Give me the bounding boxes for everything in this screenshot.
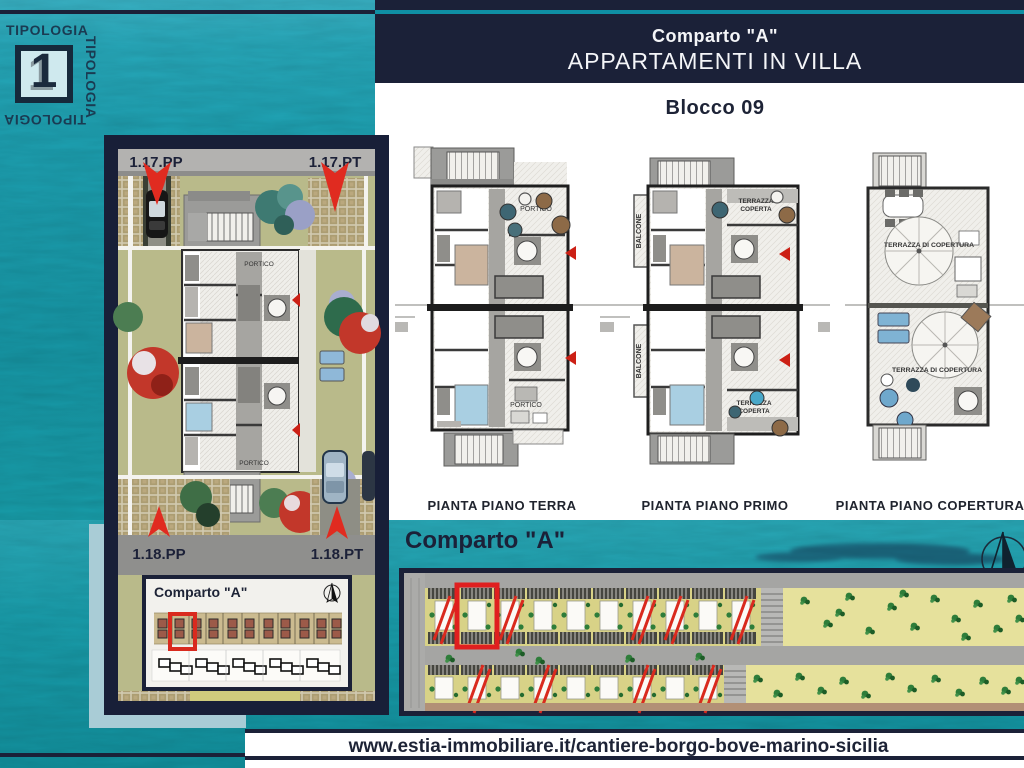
svg-text:PORTICO: PORTICO	[510, 402, 542, 409]
svg-text:TERRAZZA DI COPERTURA: TERRAZZA DI COPERTURA	[892, 367, 982, 374]
svg-text:BALCONE: BALCONE	[636, 213, 643, 248]
svg-text:PORTICO: PORTICO	[244, 261, 274, 268]
svg-text:1.17.PT: 1.17.PT	[309, 154, 362, 171]
svg-text:1.18.PP: 1.18.PP	[132, 546, 185, 563]
svg-text:TERRAZZA: TERRAZZA	[738, 198, 773, 205]
svg-text:1.17.PP: 1.17.PP	[129, 154, 182, 171]
svg-text:Comparto "A": Comparto "A"	[154, 584, 247, 600]
svg-text:COPERTA: COPERTA	[740, 206, 772, 213]
svg-text:COPERTA: COPERTA	[738, 408, 770, 415]
svg-text:1.18.PT: 1.18.PT	[311, 546, 364, 563]
svg-text:PORTICO: PORTICO	[239, 460, 269, 467]
svg-text:BALCONE: BALCONE	[636, 343, 643, 378]
svg-text:TERRAZZA DI COPERTURA: TERRAZZA DI COPERTURA	[884, 242, 974, 249]
